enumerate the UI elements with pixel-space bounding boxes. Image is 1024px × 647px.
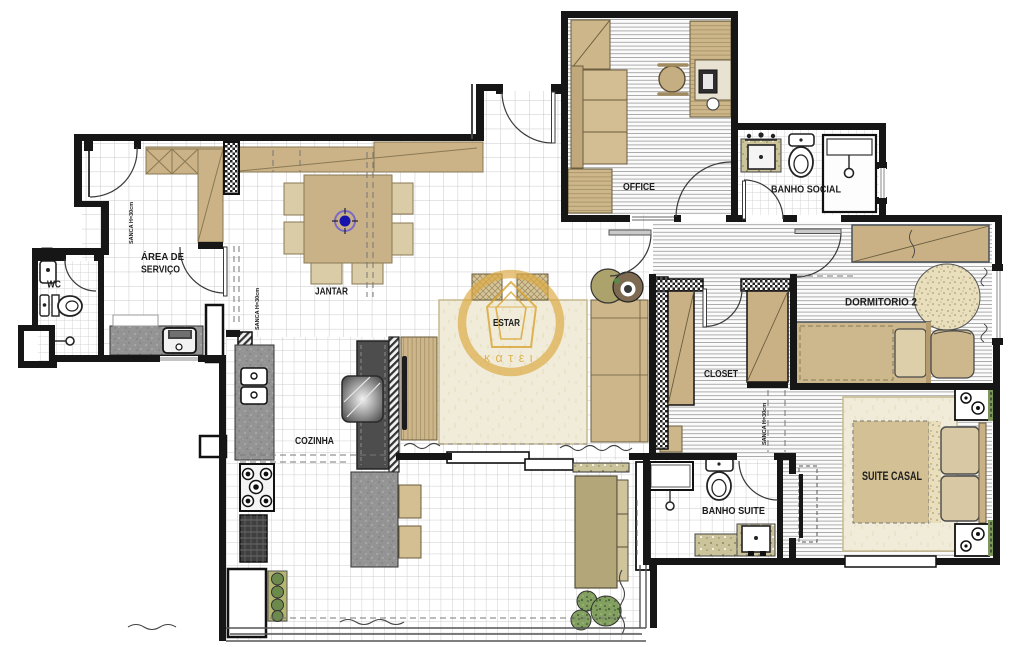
svg-text:JANTAR: JANTAR	[315, 286, 348, 298]
svg-text:CLOSET: CLOSET	[704, 368, 738, 380]
svg-text:SANCA H=30cm: SANCA H=30cm	[129, 202, 135, 244]
svg-text:SANCA H=30cm: SANCA H=30cm	[255, 288, 261, 330]
svg-text:BANHO SUITE: BANHO SUITE	[702, 505, 765, 517]
svg-text:SANCA H=30cm: SANCA H=30cm	[762, 403, 768, 445]
svg-text:ÁREA DE: ÁREA DE	[141, 250, 184, 263]
svg-text:κατει: κατει	[484, 351, 538, 365]
svg-text:ESTAR: ESTAR	[493, 318, 521, 329]
svg-text:BANHO SOCIAL: BANHO SOCIAL	[771, 184, 841, 196]
svg-text:OFFICE: OFFICE	[623, 181, 655, 193]
svg-text:DORMITORIO 2: DORMITORIO 2	[845, 297, 917, 309]
svg-text:WC: WC	[47, 279, 61, 291]
svg-text:SUITE CASAL: SUITE CASAL	[862, 471, 922, 483]
svg-text:SERVIÇO: SERVIÇO	[141, 264, 180, 276]
svg-text:COZINHA: COZINHA	[295, 435, 334, 447]
